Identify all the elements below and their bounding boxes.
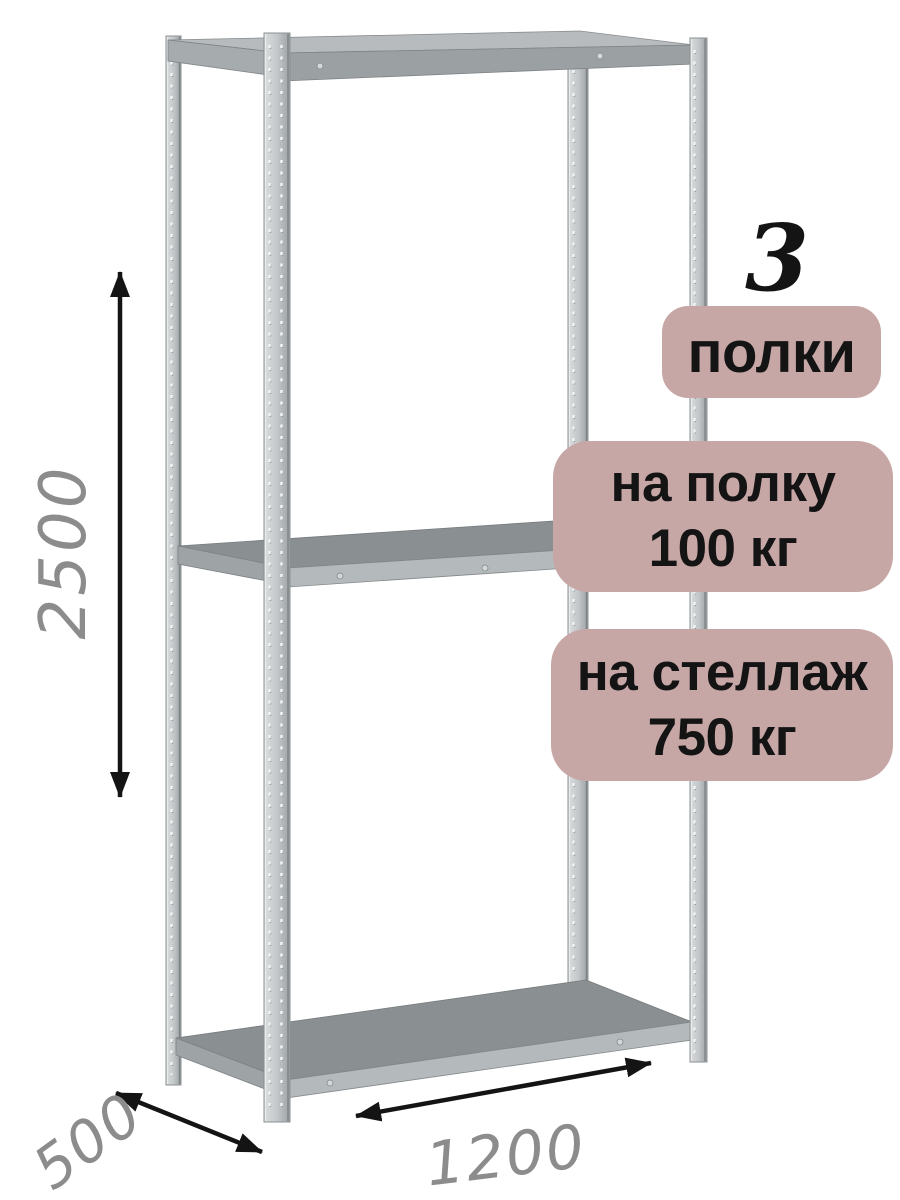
shelf-count: 3	[722, 210, 832, 306]
rack-load-badge: на стеллаж 750 кг	[551, 629, 893, 781]
product-diagram: 2500 500 1200 3 полки на полку 100 кг на…	[0, 0, 900, 1200]
rack-shelf-bottom	[176, 980, 692, 1098]
rack-load-line1: на стеллаж	[551, 640, 893, 705]
shelves-badge: полки	[662, 306, 881, 398]
height-dimension-label: 2500	[27, 465, 101, 640]
shelf-load-badge: на полку 100 кг	[553, 441, 893, 592]
rack-load-line2: 750 кг	[551, 705, 893, 770]
shelves-badge-label: полки	[687, 320, 855, 385]
shelving-rack-drawing	[0, 0, 900, 1200]
rack-shelf-top	[168, 31, 694, 81]
shelf-load-line2: 100 кг	[553, 516, 893, 581]
shelf-load-line1: на полку	[553, 451, 893, 516]
